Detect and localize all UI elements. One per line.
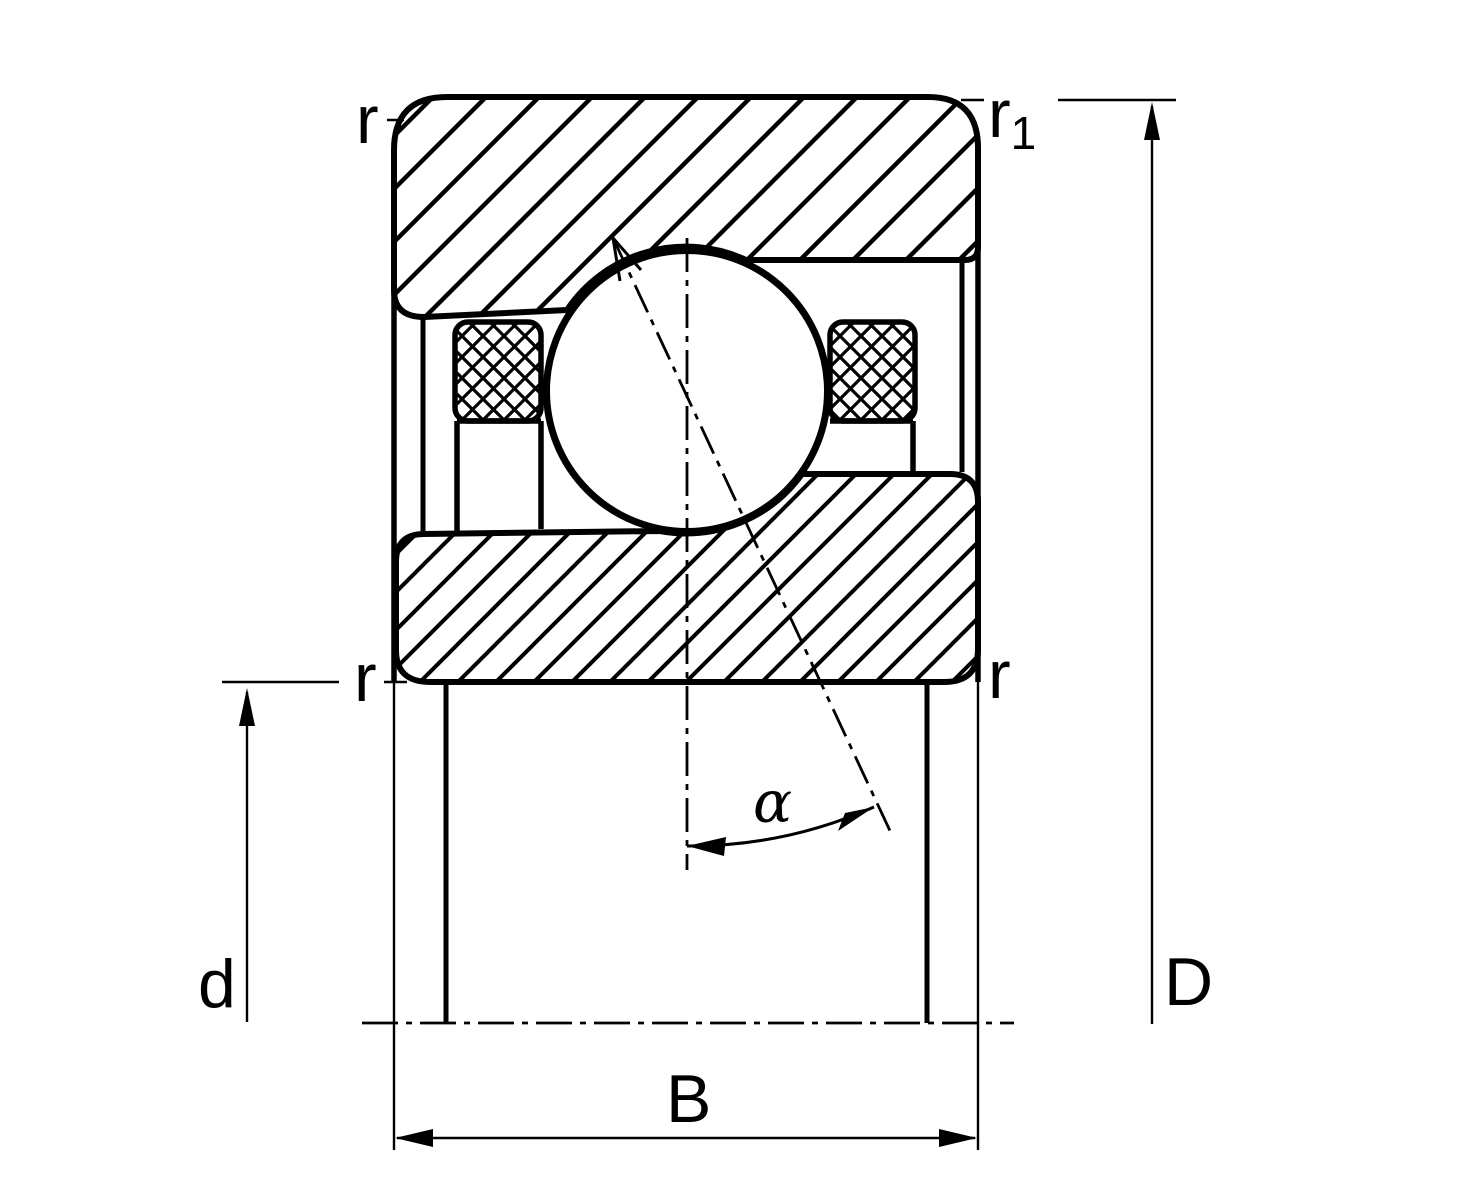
- label-contact-angle: α: [753, 768, 792, 836]
- bearing-drawing-canvas: r r1 r r d D B α: [0, 0, 1466, 1200]
- label-bore-diameter: d: [198, 946, 236, 1022]
- label-radius-mid-right: r: [988, 637, 1011, 713]
- label-width: B: [666, 1061, 711, 1137]
- label-radius-mid-left: r: [354, 640, 377, 716]
- label-r1-subscript: 1: [1011, 107, 1037, 159]
- bearing-drawing: r r1 r r d D B α: [0, 0, 1466, 1200]
- label-outside-diameter: D: [1164, 944, 1213, 1020]
- label-r1-base: r: [988, 76, 1011, 152]
- label-radius-top-left: r: [356, 82, 379, 158]
